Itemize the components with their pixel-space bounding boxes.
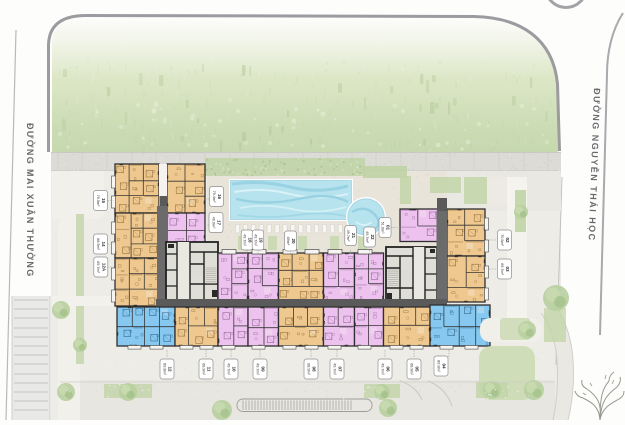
svg-text:49.7m²: 49.7m² xyxy=(380,363,384,376)
svg-text:51.6m²: 51.6m² xyxy=(380,222,384,235)
svg-text:14: 14 xyxy=(101,241,106,247)
svg-text:03: 03 xyxy=(505,266,510,272)
svg-text:07: 07 xyxy=(338,366,343,372)
svg-text:70.5m²: 70.5m² xyxy=(500,234,504,247)
svg-text:68.9m²: 68.9m² xyxy=(306,363,310,376)
svg-text:21: 21 xyxy=(351,233,356,239)
svg-text:10: 10 xyxy=(232,366,237,372)
svg-text:69.7m²: 69.7m² xyxy=(500,263,504,276)
svg-text:70.4m²: 70.4m² xyxy=(212,191,216,204)
svg-text:08: 08 xyxy=(312,366,317,372)
svg-text:89.8m²: 89.8m² xyxy=(162,363,166,376)
svg-text:17: 17 xyxy=(217,220,222,226)
svg-text:22: 22 xyxy=(370,234,375,240)
svg-text:70.5m²: 70.5m² xyxy=(96,195,100,208)
svg-text:16: 16 xyxy=(217,194,222,200)
svg-text:49.7m²: 49.7m² xyxy=(242,234,246,247)
svg-text:49.7m²: 49.7m² xyxy=(332,363,336,376)
svg-text:68.9m²: 68.9m² xyxy=(96,238,100,251)
svg-text:05: 05 xyxy=(415,366,420,372)
svg-text:09: 09 xyxy=(261,366,266,372)
svg-text:ĐƯỜNG MAI XUÂN THƯỜNG: ĐƯỜNG MAI XUÂN THƯỜNG xyxy=(25,123,36,278)
svg-text:06: 06 xyxy=(386,366,391,372)
svg-text:15: 15 xyxy=(101,198,106,204)
svg-text:49.7m²: 49.7m² xyxy=(346,230,350,243)
svg-text:19: 19 xyxy=(259,237,264,243)
svg-text:49.7m²: 49.7m² xyxy=(365,231,369,244)
svg-text:49.7m²: 49.7m² xyxy=(226,363,230,376)
svg-text:12: 12 xyxy=(168,366,173,372)
svg-text:04: 04 xyxy=(442,363,447,369)
svg-text:68.9m²: 68.9m² xyxy=(409,363,413,376)
svg-text:20: 20 xyxy=(291,238,296,244)
svg-text:49.9m²: 49.9m² xyxy=(211,217,215,230)
svg-text:69.7m²: 69.7m² xyxy=(96,261,100,274)
svg-text:49.7m²: 49.7m² xyxy=(253,234,257,247)
svg-text:89.9m²: 89.9m² xyxy=(436,360,440,373)
svg-text:01: 01 xyxy=(386,225,391,231)
svg-text:49.7m²: 49.7m² xyxy=(255,363,259,376)
svg-text:68.9m²: 68.9m² xyxy=(201,363,205,376)
svg-text:02: 02 xyxy=(505,237,510,243)
svg-text:11: 11 xyxy=(207,367,212,372)
svg-text:12A: 12A xyxy=(101,263,106,272)
svg-text:69m²: 69m² xyxy=(286,237,290,246)
